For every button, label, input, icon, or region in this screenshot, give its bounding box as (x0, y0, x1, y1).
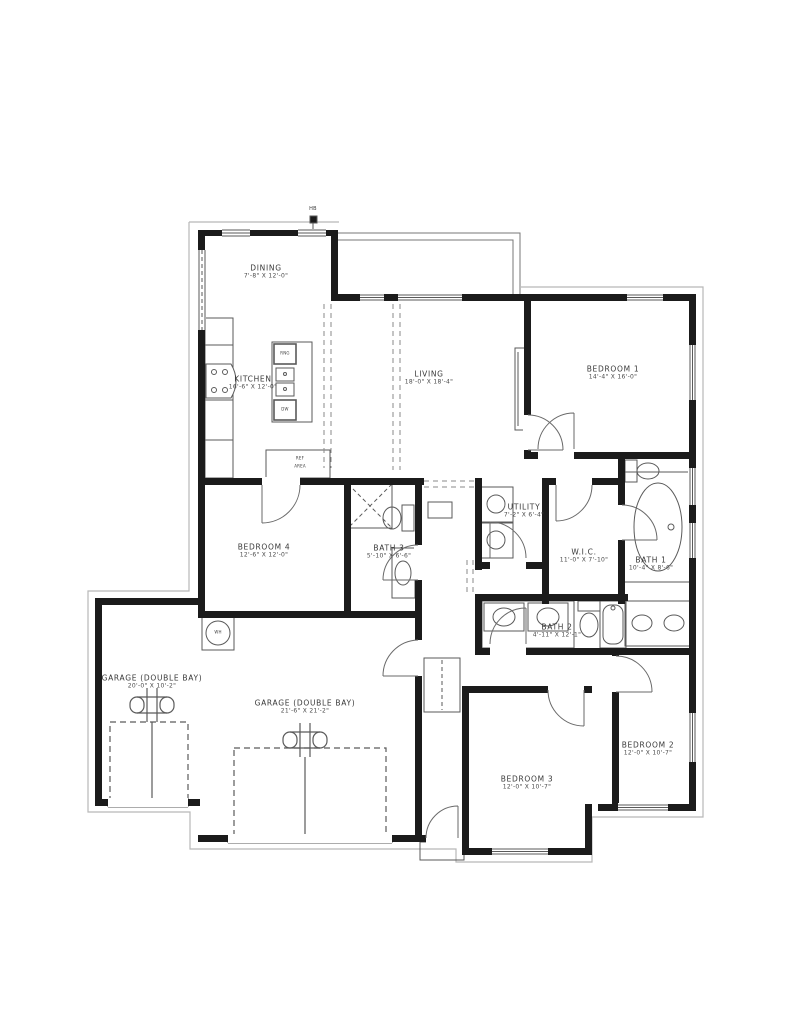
room-name: KITCHEN (229, 375, 277, 384)
room-dims: 14'-4" X 16'-0" (587, 374, 640, 382)
room-name: BEDROOM 4 (238, 543, 291, 552)
dishwasher-label: DW (281, 408, 288, 413)
room-label-bedroom-2: BEDROOM 2 12'-0" X 10'-7" (622, 741, 675, 758)
ref-area-label-line2: AREA (294, 465, 306, 470)
room-dims: 16'-6" X 12'-0" (229, 384, 277, 392)
room-dims: 11'-0" X 7'-10" (560, 557, 608, 565)
room-dims: 21'-6" X 21'-2" (255, 708, 356, 716)
room-name: BATH 1 (629, 556, 673, 565)
floor-plan-page: DINING 7'-8" X 12'-0" KITCHEN 16'-6" X 1… (0, 0, 791, 1024)
room-dims: 12'-0" X 10'-7" (622, 750, 675, 758)
hose-bib-label: HB (309, 207, 317, 213)
room-name: BEDROOM 3 (501, 775, 554, 784)
room-dims: 10'-4" X 8'-6" (629, 565, 673, 573)
room-dims: 7'-8" X 12'-0" (244, 273, 288, 281)
room-label-garage-main: GARAGE (DOUBLE BAY) 21'-6" X 21'-2" (255, 699, 356, 716)
room-label-bedroom-3: BEDROOM 3 12'-0" X 10'-7" (501, 775, 554, 792)
room-dims: 4'-11" X 12'-1" (533, 632, 581, 640)
walls-layer (95, 230, 696, 855)
room-label-bedroom-4: BEDROOM 4 12'-6" X 12'-0" (238, 543, 291, 560)
room-label-utility: UTILITY 7'-2" X 6'-4" (504, 503, 544, 520)
outer-outline (88, 222, 703, 862)
water-heater-label: WH (214, 631, 221, 636)
room-name: BATH 3 (367, 544, 411, 553)
room-name: DINING (244, 264, 288, 273)
room-dims: 18'-0" X 18'-4" (405, 379, 453, 387)
room-name: BATH 2 (533, 623, 581, 632)
room-name: GARAGE (DOUBLE BAY) (255, 699, 356, 708)
floor-plan-drawing (0, 0, 791, 1024)
room-dims: 12'-0" X 10'-7" (501, 784, 554, 792)
garage-opener-left (130, 688, 174, 799)
room-label-kitchen: KITCHEN 16'-6" X 12'-0" (229, 375, 277, 392)
room-label-bath-1: BATH 1 10'-4" X 8'-6" (629, 556, 673, 573)
room-name: GARAGE (DOUBLE BAY) (102, 674, 203, 683)
range-label: RNG (280, 352, 289, 357)
room-name: BEDROOM 2 (622, 741, 675, 750)
garage-opener-main (283, 723, 327, 835)
room-label-dining: DINING 7'-8" X 12'-0" (244, 264, 288, 281)
room-label-bath-3: BATH 3 5'-10" X 6'-6" (367, 544, 411, 561)
room-label-living: LIVING 18'-0" X 18'-4" (405, 370, 453, 387)
room-name: BEDROOM 1 (587, 365, 640, 374)
patio-outline (338, 233, 520, 294)
room-label-wic: W.I.C. 11'-0" X 7'-10" (560, 548, 608, 565)
room-name: LIVING (405, 370, 453, 379)
room-dims: 7'-2" X 6'-4" (504, 512, 544, 520)
room-dims: 12'-6" X 12'-0" (238, 552, 291, 560)
fixtures-layer (108, 216, 692, 860)
room-label-bedroom-1: BEDROOM 1 14'-4" X 16'-0" (587, 365, 640, 382)
ref-area-label-line1: REF (296, 457, 304, 462)
room-label-bath-2: BATH 2 4'-11" X 12'-1" (533, 623, 581, 640)
room-dims: 5'-10" X 6'-6" (367, 553, 411, 561)
room-label-garage-left: GARAGE (DOUBLE BAY) 20'-0" X 10'-2" (102, 674, 203, 691)
room-name: W.I.C. (560, 548, 608, 557)
room-name: UTILITY (504, 503, 544, 512)
room-dims: 20'-0" X 10'-2" (102, 683, 203, 691)
